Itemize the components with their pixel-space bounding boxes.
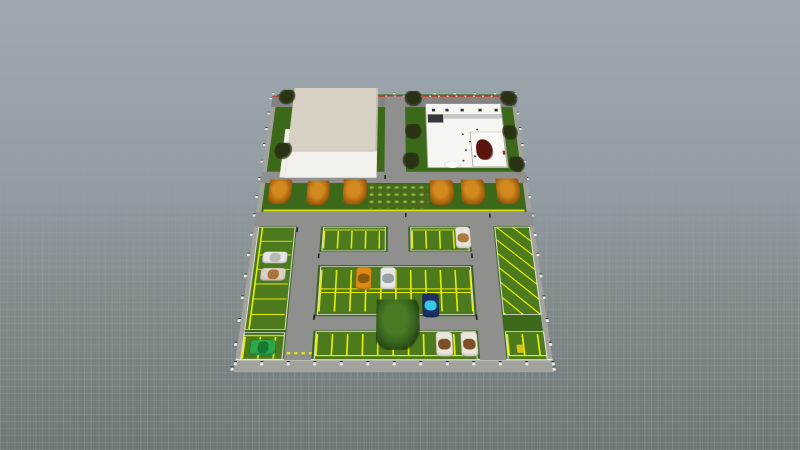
- fence-post: [272, 92, 275, 94]
- car-roof: [463, 339, 477, 350]
- lot-row1-left: [321, 227, 386, 251]
- roof-unit: [431, 109, 435, 112]
- fence-post: [234, 361, 237, 365]
- interior-item: [474, 155, 476, 157]
- fence-post: [250, 233, 253, 236]
- right-building-door: [503, 151, 506, 155]
- tree-autumn[interactable]: [306, 181, 330, 205]
- fence-post: [234, 342, 237, 346]
- light-pole: [471, 253, 473, 258]
- entrance-canopy: [444, 161, 461, 168]
- tree-bare[interactable]: [508, 157, 526, 173]
- interior-item: [465, 149, 467, 151]
- interior-item: [476, 129, 478, 131]
- tree-big-green[interactable]: [376, 299, 420, 349]
- fence-post: [474, 92, 476, 94]
- fence-post: [521, 143, 524, 146]
- fence-post: [230, 366, 233, 370]
- fence-post: [528, 195, 531, 198]
- fence-post: [237, 318, 240, 322]
- right-building-panel: [428, 115, 444, 123]
- fence-post: [241, 295, 244, 299]
- shrub-bed: [367, 184, 429, 208]
- car-roof: [382, 274, 394, 283]
- fence-post: [472, 361, 475, 365]
- car-white-left[interactable]: [262, 252, 288, 264]
- light-pole: [318, 253, 320, 258]
- car-roof: [424, 300, 437, 310]
- fence-post: [525, 361, 528, 365]
- tree-autumn[interactable]: [461, 180, 486, 205]
- car-tan-left[interactable]: [259, 268, 286, 281]
- fence-post: [534, 233, 537, 236]
- car-blue[interactable]: [422, 293, 439, 317]
- roof-unit: [494, 109, 498, 112]
- tree-bare[interactable]: [405, 124, 422, 139]
- fence-post: [454, 92, 456, 94]
- left-building-roof[interactable]: [287, 88, 378, 152]
- fence-post: [255, 195, 258, 198]
- lot-right-bottom: [505, 331, 548, 360]
- fence-post: [340, 361, 343, 365]
- fence-post: [536, 253, 539, 256]
- car-green[interactable]: [249, 340, 277, 356]
- fence-post: [287, 361, 290, 365]
- tree-bare[interactable]: [273, 143, 293, 160]
- fence-post: [260, 160, 263, 163]
- road-aisle-1: [293, 252, 497, 265]
- fence-post: [393, 92, 395, 94]
- car-roof: [357, 274, 369, 283]
- light-pole: [489, 213, 491, 217]
- interior-item: [469, 141, 471, 143]
- driveway-between-buildings: [384, 96, 406, 183]
- 3d-viewport[interactable]: [0, 0, 800, 450]
- fence-post: [519, 127, 522, 130]
- tree-bare[interactable]: [402, 153, 419, 169]
- fence-post: [546, 318, 549, 322]
- tree-bare[interactable]: [499, 91, 519, 106]
- light-pole: [384, 175, 385, 179]
- car-white-brown-2[interactable]: [460, 332, 479, 357]
- roof-unit: [478, 109, 482, 112]
- fence-post: [263, 143, 266, 146]
- site-plan: [234, 95, 554, 372]
- interior-item: [462, 133, 464, 135]
- light-pole: [405, 213, 407, 217]
- interior-item: [462, 160, 464, 162]
- fence-post: [446, 361, 449, 365]
- fence-post: [552, 366, 555, 370]
- fence-post: [552, 361, 555, 365]
- fence-post: [539, 274, 542, 278]
- left-building-lower[interactable]: [284, 151, 377, 177]
- tree-autumn[interactable]: [267, 180, 292, 204]
- tree-autumn[interactable]: [343, 179, 367, 204]
- fence-post: [265, 127, 268, 130]
- car-orange[interactable]: [355, 267, 372, 289]
- car-roof: [457, 233, 469, 242]
- fence-post: [267, 112, 270, 115]
- car-roof: [267, 269, 279, 279]
- car-roof: [269, 253, 281, 262]
- fence-post: [260, 361, 263, 365]
- fence-post: [393, 361, 396, 365]
- fence-post: [313, 361, 316, 365]
- fence-post: [366, 361, 369, 365]
- tree-bare[interactable]: [501, 125, 518, 139]
- car-roof: [438, 339, 451, 350]
- fence-post: [247, 253, 250, 256]
- car-white-brown-1[interactable]: [435, 332, 453, 357]
- car-white-tan-topright[interactable]: [455, 227, 472, 249]
- fence-post: [419, 361, 422, 365]
- tree-bare[interactable]: [404, 91, 422, 106]
- fence-post: [549, 342, 552, 346]
- tree-autumn[interactable]: [495, 179, 521, 204]
- tree-bare[interactable]: [278, 90, 297, 105]
- car-white-mid[interactable]: [380, 267, 396, 289]
- fence-post: [517, 112, 520, 115]
- roof-unit: [445, 109, 449, 112]
- fence-post: [494, 92, 496, 94]
- fence-post: [499, 361, 502, 365]
- fence-post: [433, 92, 435, 94]
- fence-post: [244, 274, 247, 278]
- entrance-dashes: [287, 352, 312, 354]
- yellow-cart: [516, 345, 524, 353]
- fence-post: [542, 295, 545, 299]
- roof-unit: [460, 109, 464, 112]
- light-pole: [476, 315, 478, 320]
- car-roof: [257, 341, 269, 353]
- tree-autumn[interactable]: [430, 180, 455, 205]
